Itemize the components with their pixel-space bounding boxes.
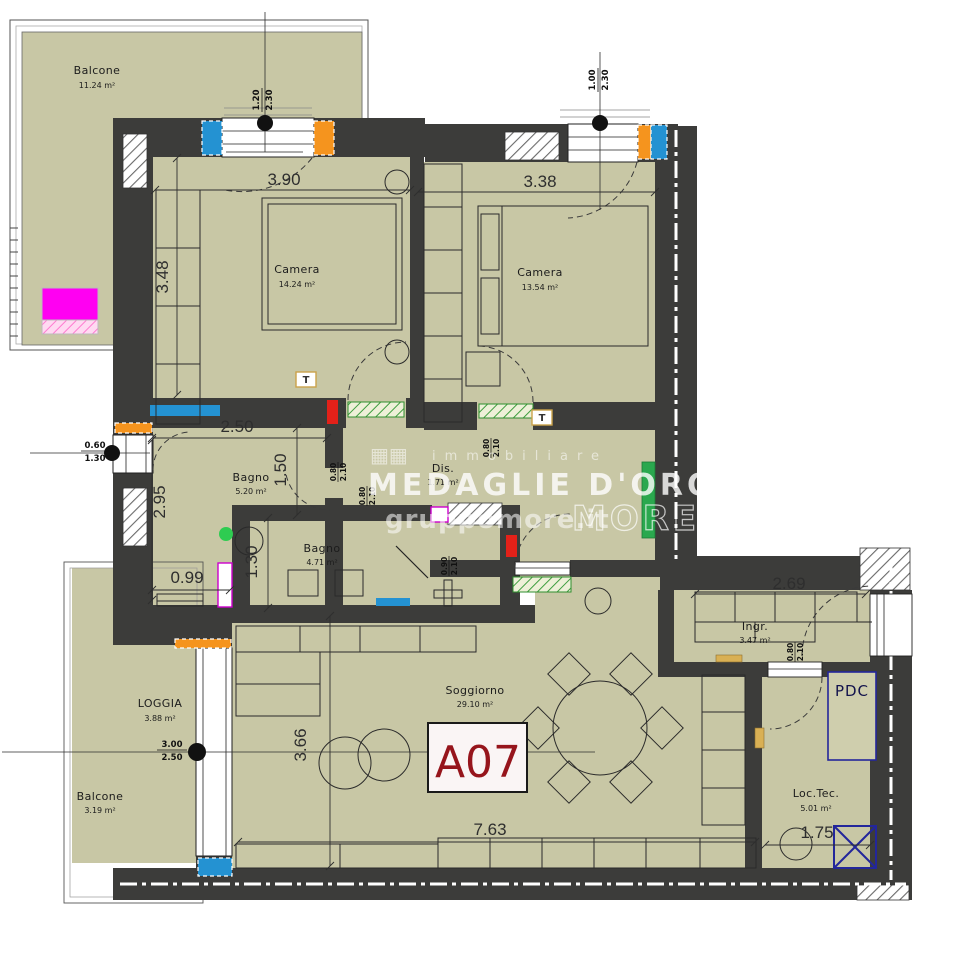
- svg-text:1.30: 1.30: [85, 454, 106, 464]
- room-area-balcone-bottom: 3.19 m²: [84, 806, 115, 815]
- room-label-balcone-bottom: Balcone: [77, 790, 124, 803]
- room-label-soggiorno: Soggiorno: [445, 684, 504, 697]
- dim-cam1-width: 3.90: [267, 170, 300, 189]
- floor-camera2: [424, 162, 655, 430]
- svg-text:2.10: 2.10: [450, 557, 459, 576]
- thermostat-label: T: [539, 413, 546, 424]
- thermal-marker-blue-icon: [202, 121, 222, 155]
- thermostat-2: T: [532, 410, 552, 425]
- room-area-camera1: 14.24 m²: [279, 280, 315, 289]
- room-area-loggia: 3.88 m²: [144, 714, 175, 723]
- svg-text:1.00: 1.00: [588, 69, 598, 90]
- room-label-camera2: Camera: [517, 266, 563, 279]
- door-soggiorno-size: 0.90 2.10: [440, 556, 459, 576]
- room-label-loctec: Loc.Tec.: [793, 787, 840, 800]
- dim-bagno1-low: 0.99: [170, 568, 203, 587]
- room-label-ingresso: Ingr.: [742, 620, 768, 633]
- stairwell-hatch-bottom: [857, 885, 909, 900]
- pocket-door-magenta: [218, 563, 232, 607]
- dim-bagno1-width: 2.50: [220, 417, 253, 436]
- dim-soggiorno-width: 7.63: [473, 820, 506, 839]
- svg-text:0.60: 0.60: [85, 441, 106, 451]
- door-loctec: [768, 662, 822, 677]
- door-soggiorno: [515, 562, 570, 575]
- thermal-marker-blue-icon: [198, 858, 232, 876]
- svg-text:2.30: 2.30: [601, 69, 611, 90]
- entrance-door: [870, 594, 912, 656]
- svg-text:0.90: 0.90: [440, 557, 449, 576]
- radiator-blue: [376, 598, 410, 606]
- room-label-camera1: Camera: [274, 263, 320, 276]
- svg-text:3.00: 3.00: [162, 740, 183, 750]
- svg-text:2.50: 2.50: [162, 753, 183, 763]
- highlight-pink-hatch: [42, 320, 98, 334]
- thermostat-label: T: [303, 375, 310, 386]
- marker-red: [506, 535, 517, 557]
- room-area-bagno2: 4.71 m²: [306, 558, 337, 567]
- window-ref-dot: [188, 743, 206, 761]
- svg-text:0.80: 0.80: [329, 463, 338, 482]
- thermal-marker-orange-icon: [115, 423, 152, 433]
- svg-text:2.10: 2.10: [796, 643, 805, 662]
- floor-plan-svg: Balcone 11.24 m²: [0, 0, 956, 965]
- room-label-balcone-top: Balcone: [74, 64, 121, 77]
- svg-text:2.30: 2.30: [265, 89, 275, 110]
- dim-bagno1-depth: 1.50: [271, 453, 290, 486]
- room-area-camera2: 13.54 m²: [522, 283, 558, 292]
- room-area-ingresso: 3.47 m²: [739, 636, 770, 645]
- dim-cam1-height: 3.48: [153, 260, 172, 293]
- stairwell-hatch-top: [860, 548, 910, 590]
- thermal-marker-orange-icon: [175, 639, 231, 648]
- door-threshold-camera1: [348, 402, 404, 417]
- svg-text:2.10: 2.10: [339, 463, 348, 482]
- svg-text:0.80: 0.80: [786, 643, 795, 662]
- window-ref-dot: [257, 115, 273, 131]
- room-area-loctec: 5.01 m²: [800, 804, 831, 813]
- brand-logo-icon: ▦▦: [370, 443, 408, 467]
- door-loctec-size: 0.80 2.10: [786, 642, 805, 662]
- room-area-bagno1: 5.20 m²: [235, 487, 266, 496]
- wall-panel-tan: [755, 728, 764, 748]
- window-ref-dot: [592, 115, 608, 131]
- unit-label: A07: [435, 737, 521, 788]
- room-area-soggiorno: 29.10 m²: [457, 700, 493, 709]
- dim-cam2-width: 3.38: [523, 172, 556, 191]
- marker-green-dot: [219, 527, 233, 541]
- watermark-brand: MEDAGLIE D'ORO: [368, 468, 717, 503]
- thermal-marker-orange-icon: [314, 121, 334, 155]
- dim-soggiorno-height: 3.66: [291, 728, 310, 761]
- highlight-magenta-panel: [42, 288, 98, 320]
- door-threshold-camera2: [479, 404, 533, 418]
- dim-loctec-width: 1.75: [800, 823, 833, 842]
- floor-plan-page: Balcone 11.24 m²: [0, 0, 956, 965]
- marker-red: [327, 400, 338, 424]
- thermal-marker-blue-icon: [651, 125, 667, 159]
- dim-ingr-width: 2.69: [772, 574, 805, 593]
- unit-badge: A07: [428, 723, 527, 792]
- door-bagno1-size: 0.80 2.10: [329, 462, 348, 482]
- svg-text:1.20: 1.20: [252, 89, 262, 110]
- thermostat-1: T: [296, 372, 316, 387]
- svg-text:0.80: 0.80: [358, 487, 367, 506]
- pdc-label: PDC: [835, 682, 869, 700]
- dim-left-height: 2.95: [150, 485, 169, 518]
- doormat: [716, 655, 742, 662]
- window-ref-dot: [104, 445, 120, 461]
- door-threshold-soggiorno: [513, 577, 571, 592]
- room-label-bagno1: Bagno: [233, 471, 270, 484]
- watermark-logo: MORE: [572, 499, 700, 539]
- room-label-loggia: LOGGIA: [138, 697, 183, 710]
- dim-bagno2-nook: 1.30: [242, 545, 261, 578]
- room-label-bagno2: Bagno: [304, 542, 341, 555]
- watermark-word: immobiliare: [432, 449, 608, 464]
- thermal-marker-orange-icon: [638, 125, 651, 159]
- room-area-balcone-top: 11.24 m²: [79, 81, 115, 90]
- radiator-blue: [150, 405, 220, 416]
